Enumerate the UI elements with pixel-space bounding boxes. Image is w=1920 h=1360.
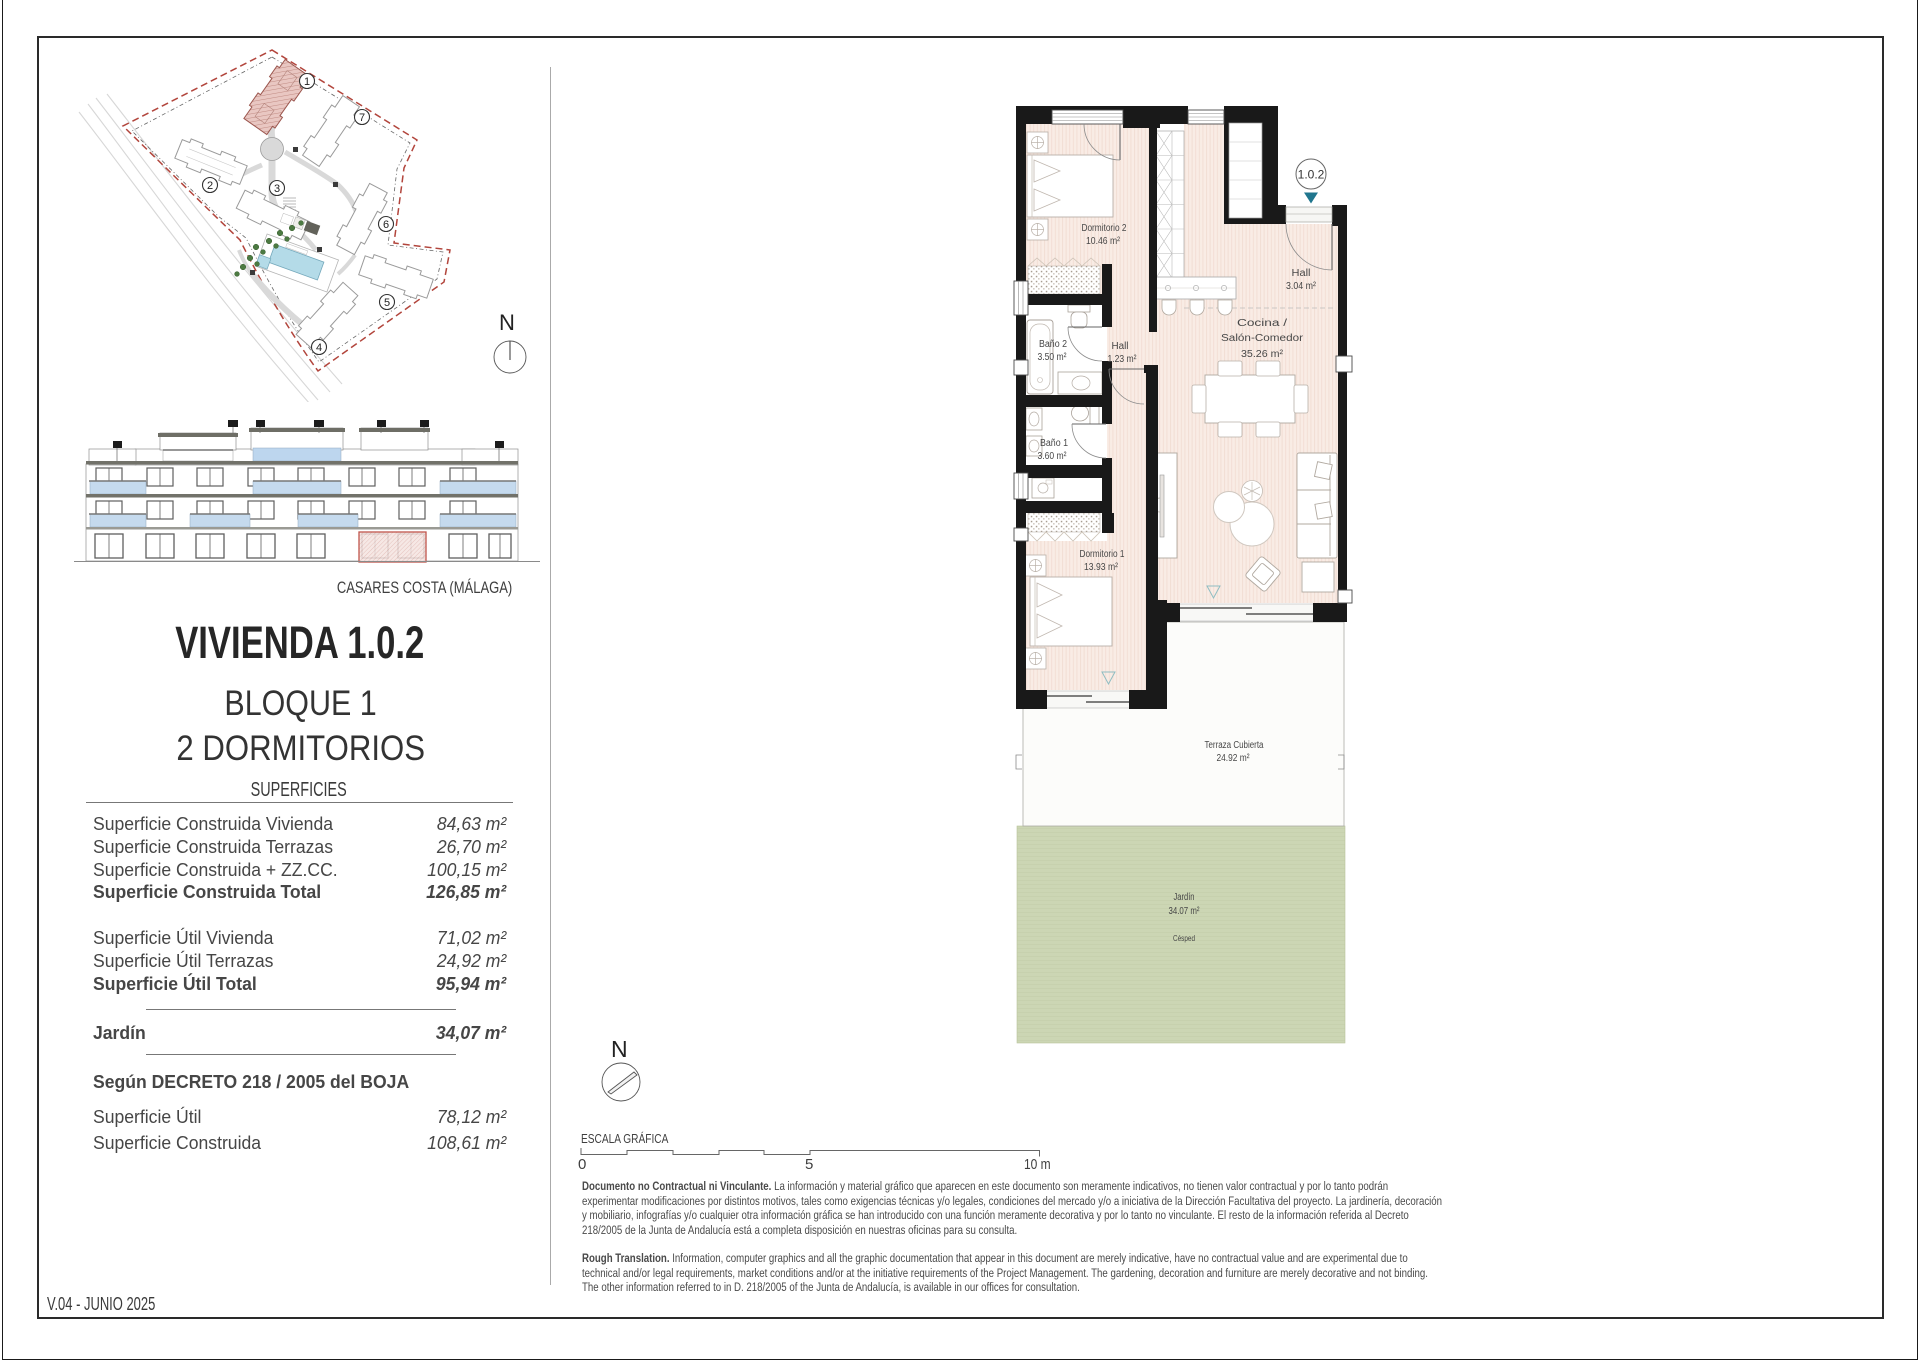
svg-text:1: 1 [304, 76, 310, 88]
svg-text:1.23 m²: 1.23 m² [1108, 354, 1138, 365]
svg-text:Baño 2: Baño 2 [1039, 339, 1067, 350]
svg-text:Hall: Hall [1292, 268, 1311, 279]
svg-text:7: 7 [359, 112, 365, 124]
svg-text:35.26 m²: 35.26 m² [1241, 349, 1284, 360]
svg-text:Hall: Hall [1112, 341, 1129, 352]
svg-text:10.46 m²: 10.46 m² [1086, 236, 1121, 247]
svg-text:Jardín: Jardín [1174, 892, 1195, 903]
svg-text:4: 4 [316, 342, 322, 354]
svg-text:6: 6 [383, 219, 389, 231]
svg-text:24.92 m²: 24.92 m² [1217, 753, 1251, 764]
svg-text:Dormitorio 2: Dormitorio 2 [1082, 223, 1127, 234]
svg-text:3.04 m²: 3.04 m² [1286, 281, 1317, 292]
svg-text:Salón-Comedor: Salón-Comedor [1221, 333, 1304, 344]
svg-text:3.50 m²: 3.50 m² [1038, 352, 1068, 363]
svg-text:Césped: Césped [1173, 934, 1195, 943]
svg-text:2: 2 [207, 180, 213, 192]
svg-text:1.0.2: 1.0.2 [1298, 168, 1325, 182]
svg-text:Cocina /: Cocina / [1237, 318, 1287, 329]
svg-text:Dormitorio 1: Dormitorio 1 [1080, 549, 1125, 560]
svg-text:3: 3 [274, 183, 280, 195]
svg-text:34.07 m²: 34.07 m² [1169, 906, 1201, 917]
svg-text:5: 5 [384, 297, 390, 309]
svg-text:13.93 m²: 13.93 m² [1084, 562, 1119, 573]
svg-text:Terraza Cubierta: Terraza Cubierta [1205, 740, 1264, 751]
svg-text:Baño 1: Baño 1 [1040, 438, 1068, 449]
svg-text:3.60 m²: 3.60 m² [1038, 451, 1068, 462]
